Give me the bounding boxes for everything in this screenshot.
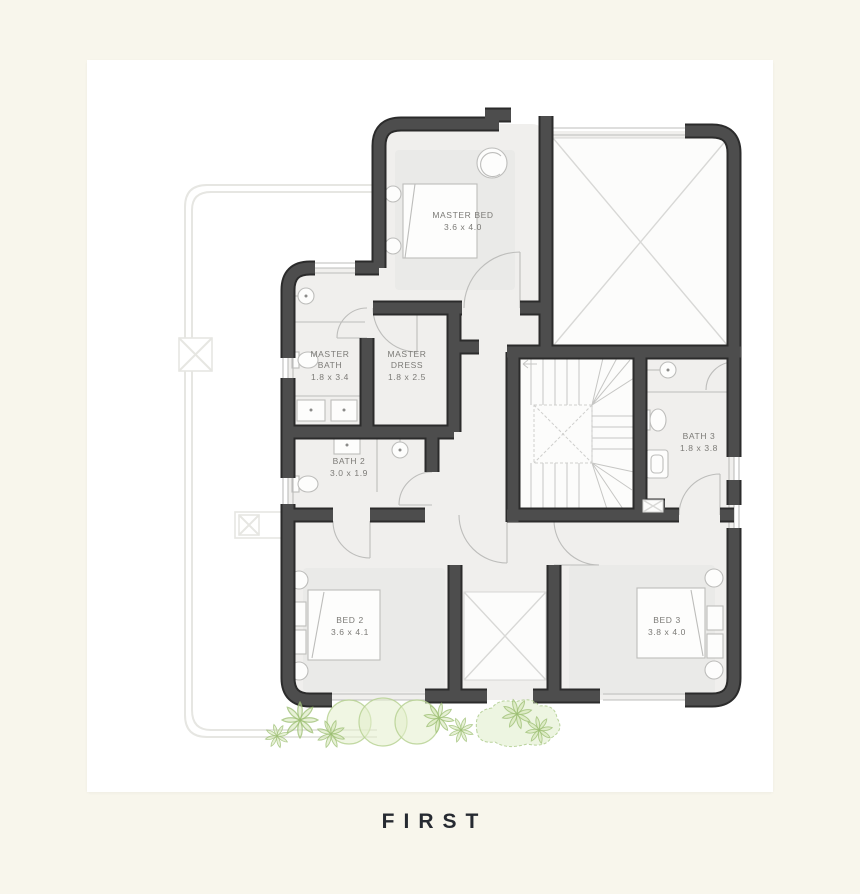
room-label-bath-3: BATH 3 (683, 431, 716, 441)
room-label-master-bed: MASTER BED (432, 210, 493, 220)
nightstand-icon (705, 569, 723, 587)
stairwell (519, 358, 634, 509)
nightstand-icon (705, 661, 723, 679)
center-shaft (464, 592, 546, 680)
floor-caption: FIRST (0, 810, 860, 834)
room-dims-master-dress: 1.8 x 2.5 (388, 372, 426, 382)
room-label-master-bath-2: BATH (318, 360, 342, 370)
room-dims-bed-3: 3.8 x 4.0 (648, 627, 686, 637)
room-dims-master-bath: 1.8 x 3.4 (311, 372, 349, 382)
floor-plan-svg: MASTER BED 3.6 x 4.0 MASTER BATH 1.8 x 3… (87, 60, 773, 792)
nightstand-icon (385, 186, 401, 202)
room-dims-bath-2: 3.0 x 1.9 (330, 468, 368, 478)
sink-icon (646, 450, 668, 478)
room-label-bath-2: BATH 2 (333, 456, 366, 466)
room-label-master-dress-1: MASTER (387, 349, 426, 359)
room-dims-bed-2: 3.6 x 4.1 (331, 627, 369, 637)
nightstand-icon (385, 238, 401, 254)
room-label-master-bath-1: MASTER (310, 349, 349, 359)
room-label-bed-2: BED 2 (336, 615, 364, 625)
room-label-master-dress-2: DRESS (391, 360, 423, 370)
bed-icon (308, 590, 380, 660)
room-dims-bath-3: 1.8 x 3.8 (680, 443, 718, 453)
floor-plan-card: MASTER BED 3.6 x 4.0 MASTER BATH 1.8 x 3… (87, 60, 773, 792)
bed-3-furniture (569, 565, 723, 695)
bath-3-duct (643, 500, 663, 512)
void-area (553, 138, 728, 346)
room-dims-master-bed: 3.6 x 4.0 (444, 222, 482, 232)
room-label-bed-3: BED 3 (653, 615, 681, 625)
bed-icon (403, 184, 477, 258)
